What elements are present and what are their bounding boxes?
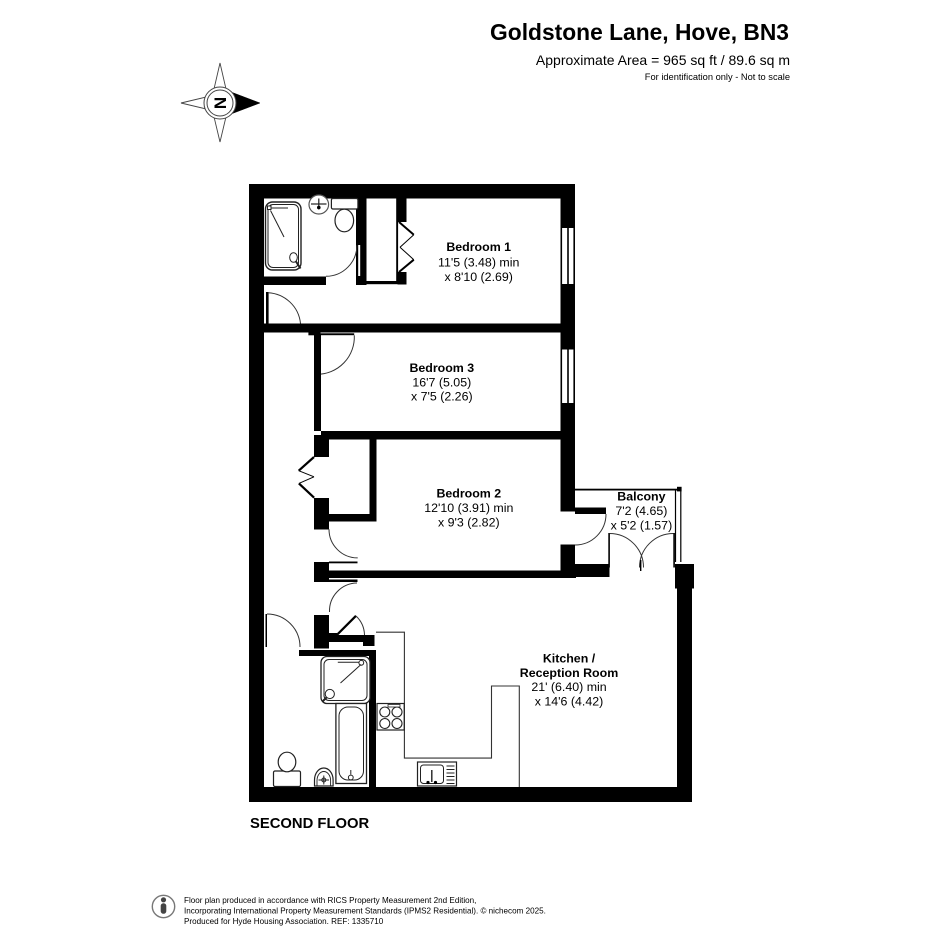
svg-text:For identification only - Not: For identification only - Not to scale — [645, 72, 790, 82]
svg-text:Floor plan produced in accorda: Floor plan produced in accordance with R… — [184, 896, 476, 905]
svg-text:16'7 (5.05): 16'7 (5.05) — [412, 375, 471, 389]
svg-text:7'2 (4.65): 7'2 (4.65) — [615, 504, 667, 518]
svg-text:Produced for Hyde Housing Asso: Produced for Hyde Housing Association. R… — [184, 917, 384, 926]
svg-text:N: N — [211, 97, 230, 109]
svg-text:SECOND FLOOR: SECOND FLOOR — [250, 816, 370, 832]
svg-text:x 14'6 (4.42): x 14'6 (4.42) — [535, 694, 604, 708]
svg-text:x 9'3 (2.82): x 9'3 (2.82) — [438, 515, 500, 529]
svg-text:x 8'10 (2.69): x 8'10 (2.69) — [444, 270, 513, 284]
svg-text:21' (6.40) min: 21' (6.40) min — [531, 680, 606, 694]
svg-text:Bedroom 3: Bedroom 3 — [409, 361, 474, 375]
svg-text:x 7'5 (2.26): x 7'5 (2.26) — [411, 390, 473, 404]
svg-text:11'5 (3.48) min: 11'5 (3.48) min — [438, 256, 519, 270]
svg-text:Goldstone Lane, Hove, BN3: Goldstone Lane, Hove, BN3 — [490, 19, 789, 45]
svg-text:Bedroom 1: Bedroom 1 — [446, 240, 511, 254]
svg-text:Bedroom 2: Bedroom 2 — [436, 487, 501, 501]
svg-text:12'10 (3.91) min: 12'10 (3.91) min — [424, 501, 513, 515]
svg-text:Approximate Area = 965 sq ft /: Approximate Area = 965 sq ft / 89.6 sq m — [536, 52, 790, 68]
svg-text:Reception Room: Reception Room — [520, 666, 618, 680]
svg-text:x 5'2 (1.57): x 5'2 (1.57) — [611, 518, 673, 532]
svg-text:Kitchen /: Kitchen / — [543, 652, 596, 666]
svg-text:Incorporating International Pr: Incorporating International Property Mea… — [184, 907, 546, 916]
svg-text:Balcony: Balcony — [617, 490, 665, 504]
